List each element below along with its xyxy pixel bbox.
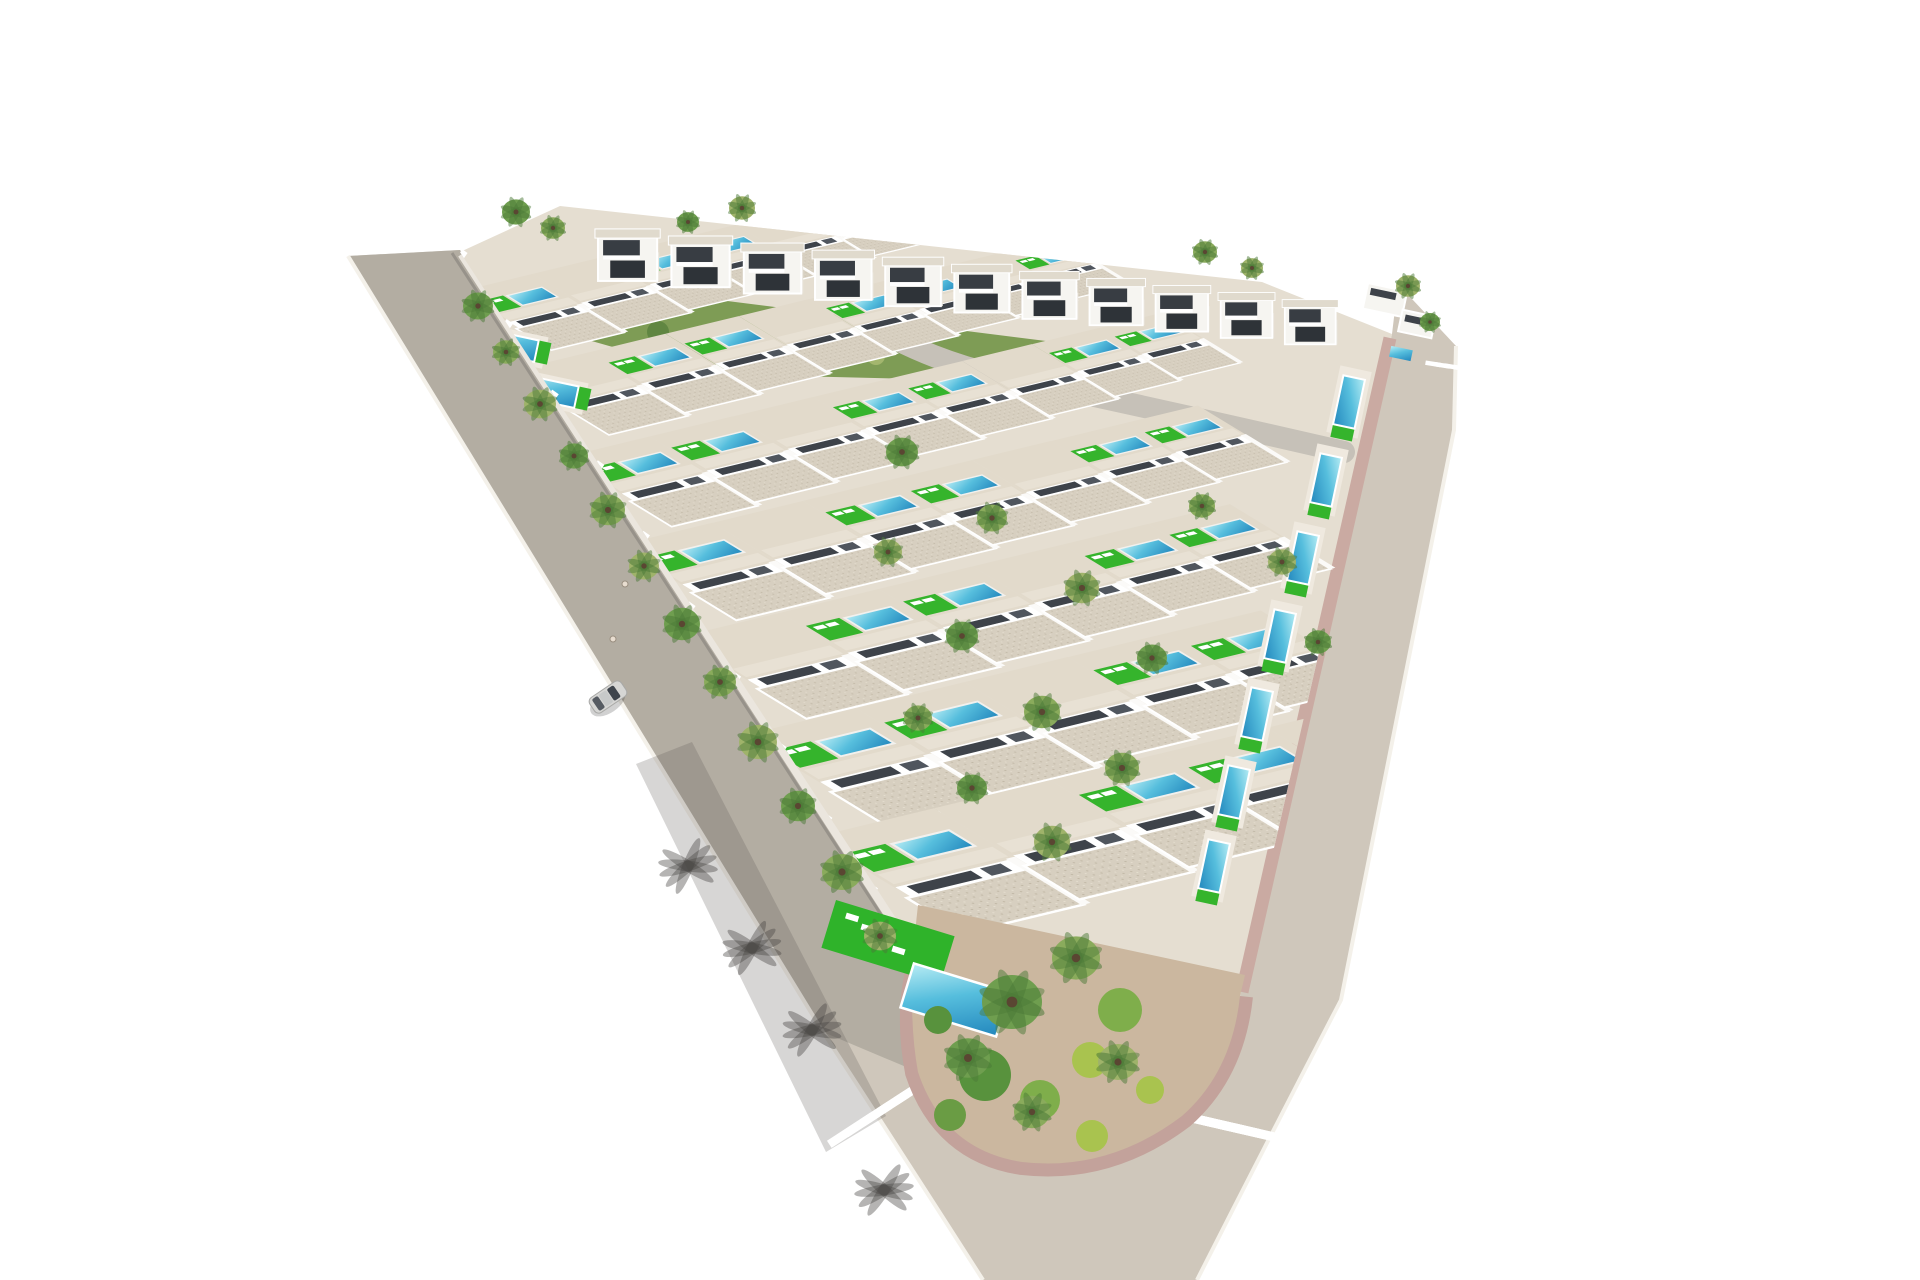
upper-window-opening <box>1225 302 1257 315</box>
villa-parapet <box>1428 743 1499 783</box>
aerial-development-render <box>0 0 1920 1280</box>
villa-roof-band <box>812 250 874 259</box>
garden-shrub <box>1076 1120 1108 1152</box>
palm-shadow <box>851 1160 918 1221</box>
sun-lounger <box>875 202 884 205</box>
villa-door <box>934 208 949 214</box>
two-storey-villa <box>882 257 943 306</box>
balcony-rail <box>1160 309 1193 313</box>
villa-gravel-roof <box>955 196 1033 224</box>
villa-door <box>879 222 895 228</box>
pedestrian <box>610 636 616 642</box>
villa-parapet <box>998 190 1036 211</box>
lower-window-opening <box>966 294 998 310</box>
lower-window-opening <box>827 280 860 297</box>
villa-roof-band <box>882 257 943 266</box>
balcony-rail <box>676 262 712 266</box>
palm-tree <box>727 193 757 223</box>
villa-door <box>987 193 1001 198</box>
villa-roof-band <box>595 229 660 238</box>
upper-window-opening <box>1094 289 1127 303</box>
upper-window-opening <box>1160 295 1193 309</box>
lower-window-opening <box>1101 307 1132 323</box>
villa-facade <box>895 205 957 223</box>
balcony-rail <box>820 275 855 279</box>
villa-yard <box>857 182 952 219</box>
villa-walkway <box>942 186 1000 203</box>
palm-tree <box>1239 255 1265 281</box>
sun-lounger <box>824 215 833 218</box>
villa-walkway <box>829 214 892 232</box>
lower-window-opening <box>897 287 930 303</box>
balcony-rail <box>1094 302 1127 306</box>
villa-building <box>895 205 984 239</box>
lower-window-opening <box>1034 300 1066 316</box>
balcony-rail <box>749 269 785 273</box>
pedestrian <box>622 581 628 587</box>
balcony-rail <box>603 255 640 259</box>
two-storey-villa <box>1020 271 1080 319</box>
villa-roof-band <box>951 264 1012 273</box>
villa-windows <box>900 211 935 222</box>
villa <box>855 182 985 240</box>
villa-roof-band <box>1153 285 1211 293</box>
two-storey-villa <box>1282 300 1338 345</box>
villa-lawn <box>813 213 847 227</box>
garden-shrub <box>1136 1076 1164 1104</box>
upper-window-opening <box>1027 282 1061 296</box>
villa-roof-band <box>1087 278 1146 286</box>
villa-pool <box>893 192 932 206</box>
two-storey-villa <box>1153 285 1211 331</box>
villa-parapet <box>946 204 985 226</box>
two-storey-villa <box>595 229 660 281</box>
two-storey-villa <box>951 264 1012 312</box>
lower-window-opening <box>1231 320 1261 335</box>
upper-window-opening <box>1289 309 1321 322</box>
garden-shrub <box>924 1006 952 1034</box>
garden-shrub <box>934 1099 966 1131</box>
render-canvas <box>0 0 1920 1280</box>
villa <box>911 169 1035 224</box>
two-storey-villa <box>812 250 874 300</box>
sun-lounger <box>882 201 891 204</box>
lower-window-opening <box>1295 327 1325 342</box>
lower-window-opening <box>756 274 790 291</box>
two-storey-villa <box>1087 278 1146 325</box>
upper-window-opening <box>890 268 925 282</box>
balcony-rail <box>1289 322 1321 326</box>
villa-roof-band <box>741 243 804 252</box>
villa-roof-band <box>1218 293 1275 301</box>
villa-lawn <box>871 198 904 211</box>
villa-windows <box>843 226 880 237</box>
villa-gravel-roof <box>900 210 982 240</box>
lower-window-opening <box>683 267 717 284</box>
villa-yard <box>798 196 897 235</box>
lower-window-opening <box>1166 314 1197 329</box>
villa-pool <box>836 206 876 220</box>
villa-roof-band <box>1020 271 1080 279</box>
two-storey-villa <box>741 243 804 293</box>
balcony-rail <box>959 289 993 293</box>
villa-door <box>1406 749 1433 759</box>
villa-windows <box>954 197 988 207</box>
upper-window-opening <box>959 275 993 289</box>
villa-yard <box>913 169 1004 205</box>
palm-tree <box>1191 238 1219 266</box>
upper-window-opening <box>820 261 855 276</box>
two-storey-villa <box>668 236 732 287</box>
lower-window-opening <box>610 261 645 278</box>
two-storey-villa <box>1218 293 1275 338</box>
balcony-rail <box>1225 316 1257 320</box>
villa-facade <box>838 220 903 238</box>
garden-shrub <box>1098 988 1142 1032</box>
upper-window-opening <box>749 254 785 269</box>
sun-lounger <box>817 217 826 220</box>
villa-building <box>950 191 1035 224</box>
balcony-rail <box>1027 296 1061 300</box>
villa-facade <box>950 191 1009 208</box>
upper-window-opening <box>603 240 640 255</box>
upper-window-opening <box>676 247 712 262</box>
balcony-rail <box>890 282 925 286</box>
villa-walkway <box>887 200 947 217</box>
villa-roof-band <box>1282 300 1338 308</box>
villa-roof-band <box>668 236 732 245</box>
villa-parapet <box>891 219 932 242</box>
